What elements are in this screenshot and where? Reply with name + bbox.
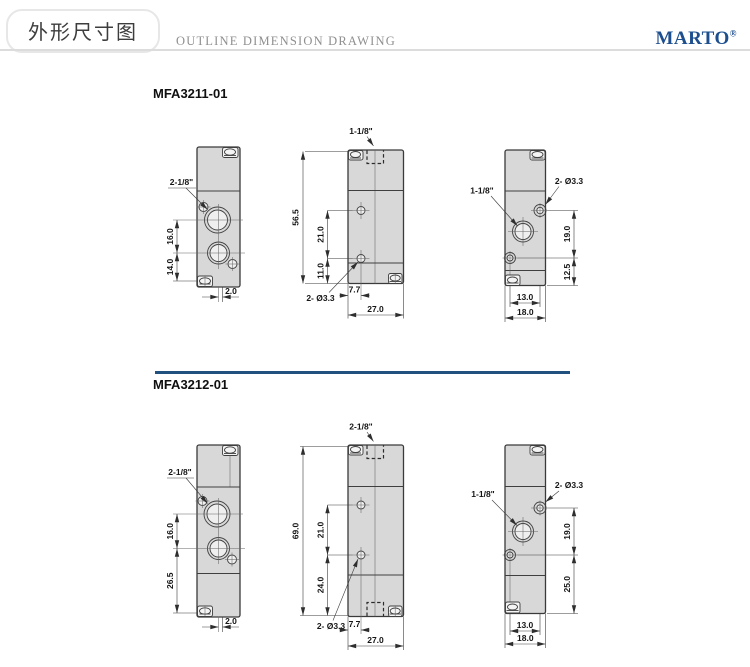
brand-name: MARTO <box>655 28 729 49</box>
dim-7-7: 7.7 <box>349 619 361 629</box>
dim-11: 11.0 <box>316 263 326 279</box>
port-size-label: 1-1/8" <box>349 126 372 136</box>
valve-body <box>503 445 548 614</box>
page-title-english: OUTLINE DIMENSION DRAWING <box>176 34 396 49</box>
header-divider <box>0 49 750 51</box>
dim-26-5: 26.5 <box>165 572 175 589</box>
port-size-label: 2-1/8" <box>170 177 193 187</box>
valve-body <box>196 445 241 617</box>
dim-14: 14.0 <box>165 258 175 275</box>
dim-21: 21.0 <box>316 226 326 243</box>
valve-body <box>348 445 404 617</box>
mfa3212-side-view: 16.0 26.5 2-1/8" 2.0 <box>160 428 280 638</box>
hole-size-label: 2- Ø3.3 <box>555 176 584 186</box>
hole-size-label: 2- Ø3.3 <box>555 480 584 490</box>
port-size-label: 2-1/8" <box>168 467 191 477</box>
dim-19: 19.0 <box>562 523 572 540</box>
mfa3212-end-view: 1-1/8" 2- Ø3.3 19.0 25.0 13.0 18.0 <box>460 425 630 653</box>
mfa3212-front-view: 2-1/8" 69.0 21.0 24.0 2- Ø3.3 7.7 27.0 <box>285 415 453 660</box>
hole-size-label: 2- Ø3.3 <box>306 293 335 303</box>
port-size-label: 2-1/8" <box>349 422 372 432</box>
valve-body <box>503 150 548 286</box>
dim-height: 69.0 <box>291 522 301 539</box>
model-label-mfa3211: MFA3211-01 <box>153 86 227 101</box>
dim-19: 19.0 <box>562 225 572 242</box>
dim-21: 21.0 <box>316 521 326 538</box>
port-size-label: 1-1/8" <box>470 186 493 196</box>
dim-13: 13.0 <box>517 620 534 630</box>
registered-mark: ® <box>730 29 737 39</box>
mfa3211-end-view: 1-1/8" 2- Ø3.3 19.0 12.5 13.0 18.0 <box>460 125 630 325</box>
port-size-label: 1-1/8" <box>471 489 494 499</box>
dim-7-7: 7.7 <box>349 285 361 295</box>
dim-16: 16.0 <box>165 228 175 245</box>
dim-24: 24.0 <box>316 576 326 593</box>
dim-offset: 2.0 <box>225 286 237 296</box>
dim-width: 27.0 <box>367 635 384 645</box>
page-title-chinese: 外形尺寸图 <box>28 16 138 45</box>
dim-width: 27.0 <box>367 304 384 314</box>
dim-18: 18.0 <box>517 633 534 643</box>
mfa3211-front-view: 1-1/8" 56.5 21.0 11.0 2- Ø3.3 7.7 27.0 <box>285 120 453 325</box>
dim-offset: 2.0 <box>225 616 237 626</box>
valve-body <box>197 147 241 287</box>
brand-logo: MARTO® <box>655 28 737 50</box>
model-label-mfa3212: MFA3212-01 <box>153 377 228 392</box>
dim-16: 16.0 <box>165 523 175 540</box>
hole-size-label: 2- Ø3.3 <box>317 621 346 631</box>
dim-18: 18.0 <box>517 307 534 317</box>
catalog-page: 外形尺寸图 OUTLINE DIMENSION DRAWING MARTO® M… <box>0 0 750 667</box>
mfa3211-side-view: 16.0 14.0 2-1/8" 2.0 <box>160 140 280 315</box>
dim-12-5: 12.5 <box>562 263 572 280</box>
section-divider <box>155 371 570 374</box>
dim-25: 25.0 <box>562 576 572 593</box>
dim-height: 56.5 <box>291 209 301 226</box>
dim-13: 13.0 <box>517 292 534 302</box>
